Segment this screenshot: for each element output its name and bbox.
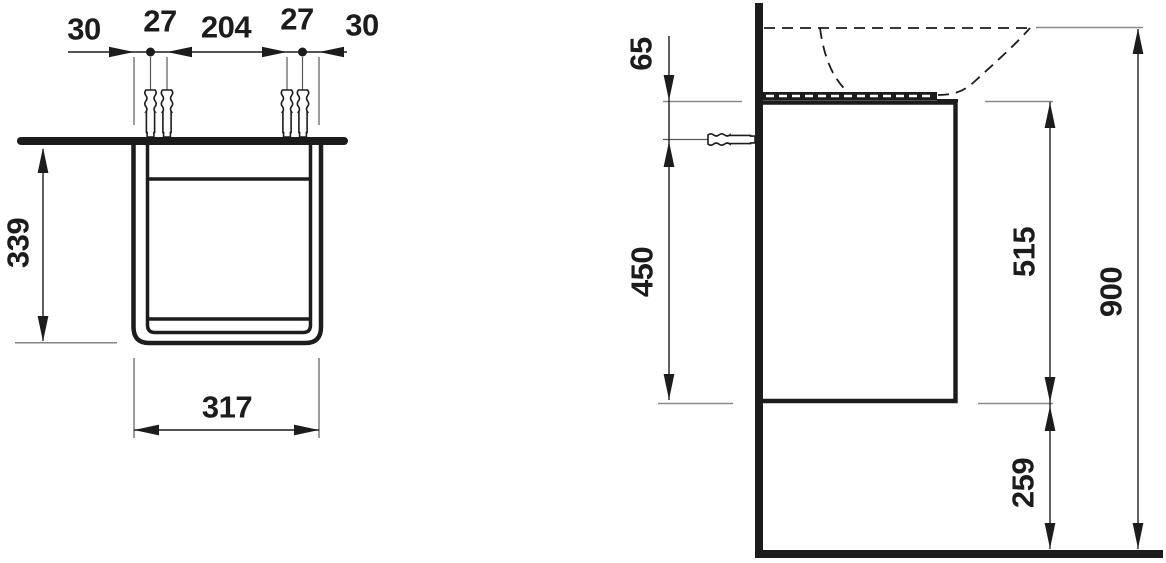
dim-label-204: 204 bbox=[201, 10, 252, 45]
arrowhead bbox=[134, 425, 159, 436]
front-cabinet bbox=[134, 145, 322, 343]
dim-label-317: 317 bbox=[202, 390, 252, 425]
dim-label-339: 339 bbox=[1, 218, 36, 268]
wall-plug-icon bbox=[281, 90, 292, 137]
arrowhead bbox=[664, 374, 675, 400]
wall-plug-side bbox=[663, 134, 756, 145]
wall-plug-icon bbox=[161, 90, 172, 137]
side-dim-65-450: 65 450 bbox=[624, 36, 743, 404]
front-height-dimension: 339 bbox=[1, 148, 118, 343]
dim-label-450: 450 bbox=[625, 247, 660, 297]
arrowhead bbox=[1045, 377, 1056, 403]
arrowhead bbox=[319, 47, 344, 57]
arrowhead bbox=[262, 47, 287, 57]
dim-label-27-left: 27 bbox=[143, 4, 176, 39]
floor-line bbox=[755, 550, 1163, 558]
arrowhead bbox=[109, 47, 134, 57]
basin-bowl-right-curve bbox=[938, 28, 1030, 95]
arrowhead bbox=[1045, 103, 1056, 129]
arrowhead bbox=[294, 425, 319, 436]
dim-label-30-right: 30 bbox=[345, 8, 378, 43]
washbasin-dashed-outline bbox=[764, 28, 1030, 95]
cabinet-side-outline bbox=[763, 103, 956, 402]
front-view: 30 27 204 27 30 339 bbox=[1, 2, 379, 439]
arrowhead bbox=[664, 75, 675, 101]
countertop-front bbox=[17, 137, 348, 145]
arrowhead bbox=[1045, 406, 1056, 431]
arrowhead bbox=[167, 47, 192, 57]
front-top-dimension-chain: 30 27 204 27 30 bbox=[67, 2, 378, 137]
wall-plug-icon bbox=[708, 134, 755, 145]
dim-label-30-left: 30 bbox=[67, 12, 100, 47]
dim-label-259: 259 bbox=[1006, 458, 1041, 508]
dimension-dot bbox=[146, 48, 155, 57]
technical-drawing-page: 30 27 204 27 30 339 bbox=[0, 0, 1166, 563]
cabinet-outer-outline bbox=[134, 145, 322, 343]
cabinet-inner-outline bbox=[148, 145, 311, 333]
side-view: 65 450 515 259 900 bbox=[624, 3, 1164, 558]
wall-plug-icon bbox=[297, 90, 308, 137]
side-dim-515-259: 515 259 bbox=[978, 102, 1055, 550]
dim-label-900: 900 bbox=[1094, 267, 1129, 317]
vanity-dimension-drawing: 30 27 204 27 30 339 bbox=[0, 0, 1166, 563]
arrowhead bbox=[38, 316, 49, 342]
dim-label-27-right: 27 bbox=[280, 2, 313, 37]
basin-bowl-left-curve bbox=[820, 28, 847, 91]
wall-plug-icon bbox=[145, 90, 156, 137]
dimension-dot bbox=[298, 48, 307, 57]
dim-label-515: 515 bbox=[1007, 227, 1042, 277]
arrowhead bbox=[664, 142, 675, 168]
side-cabinet bbox=[763, 92, 958, 401]
wall-plugs-front bbox=[145, 90, 309, 137]
arrowhead bbox=[38, 148, 49, 174]
arrowhead bbox=[1133, 523, 1144, 549]
dim-label-65: 65 bbox=[624, 37, 659, 71]
front-width-dimension: 317 bbox=[134, 358, 319, 438]
wall-line bbox=[755, 3, 763, 557]
arrowhead bbox=[1133, 29, 1144, 55]
side-dim-900: 900 bbox=[1036, 28, 1143, 550]
arrowhead bbox=[1045, 523, 1056, 549]
